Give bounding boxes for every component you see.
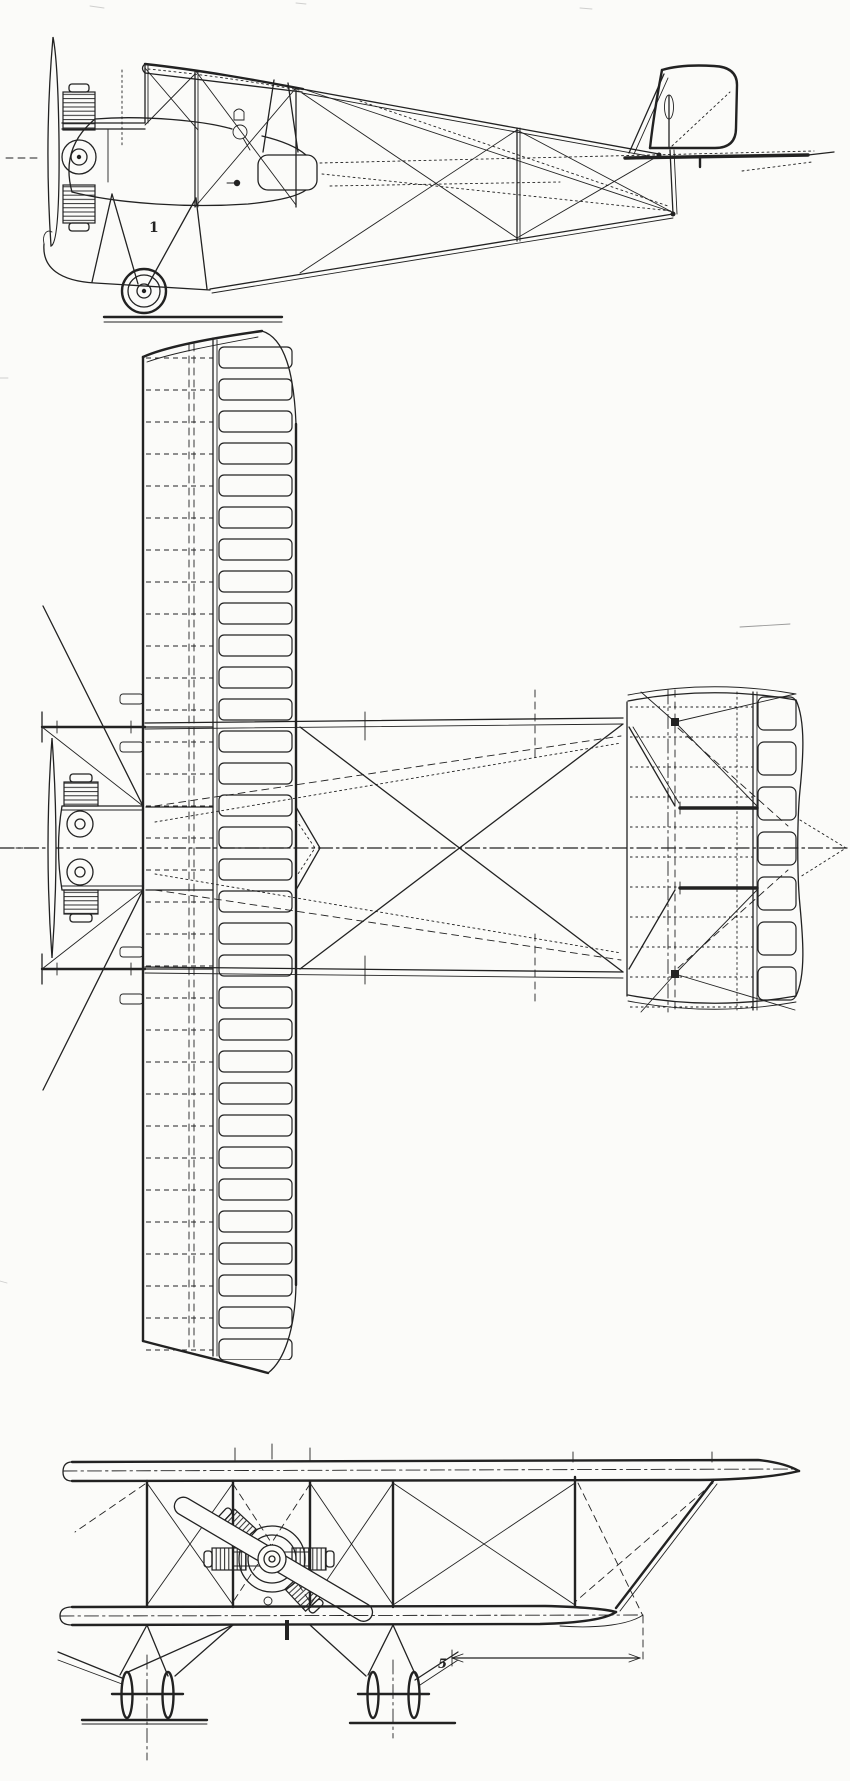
stray-mark (740, 624, 790, 627)
engine-cylinder-plan (64, 782, 98, 806)
dimension-value: 5 (438, 1657, 447, 1672)
wing-rib-bay (218, 342, 294, 1360)
landing-gear-front-left (58, 1625, 233, 1760)
upper-wing-front (63, 1444, 799, 1481)
engine-side (62, 84, 145, 231)
tailplane-plan (627, 687, 846, 1012)
plan-view (0, 331, 850, 1373)
front-view: 5 (58, 1444, 799, 1760)
fuselage-truss-side (210, 89, 814, 293)
tail-side (625, 66, 834, 217)
wing-plan (120, 331, 296, 1373)
stabilizer-side (625, 155, 808, 158)
wing-side (143, 64, 304, 92)
three-view-drawing: 1 (0, 0, 850, 1781)
propeller-hub-icon (258, 1545, 286, 1573)
propeller-plan-icon (48, 738, 56, 958)
outboard-diagonal-strut (616, 1481, 713, 1608)
dimension-line: 5 (438, 1650, 640, 1672)
elevator-rib-bay (757, 692, 798, 1010)
engine-cylinder-plan (64, 890, 98, 914)
interplane-struts-front (75, 1477, 717, 1616)
landing-gear-front-right (310, 1625, 458, 1738)
part-label-1: 1 (149, 220, 159, 236)
side-view: 1 (6, 37, 834, 322)
blueprint-sheet: 1 (0, 0, 850, 1781)
pilot-icon (234, 109, 244, 120)
propeller-side-icon (6, 37, 59, 246)
engine-cylinder-front (212, 1548, 246, 1570)
